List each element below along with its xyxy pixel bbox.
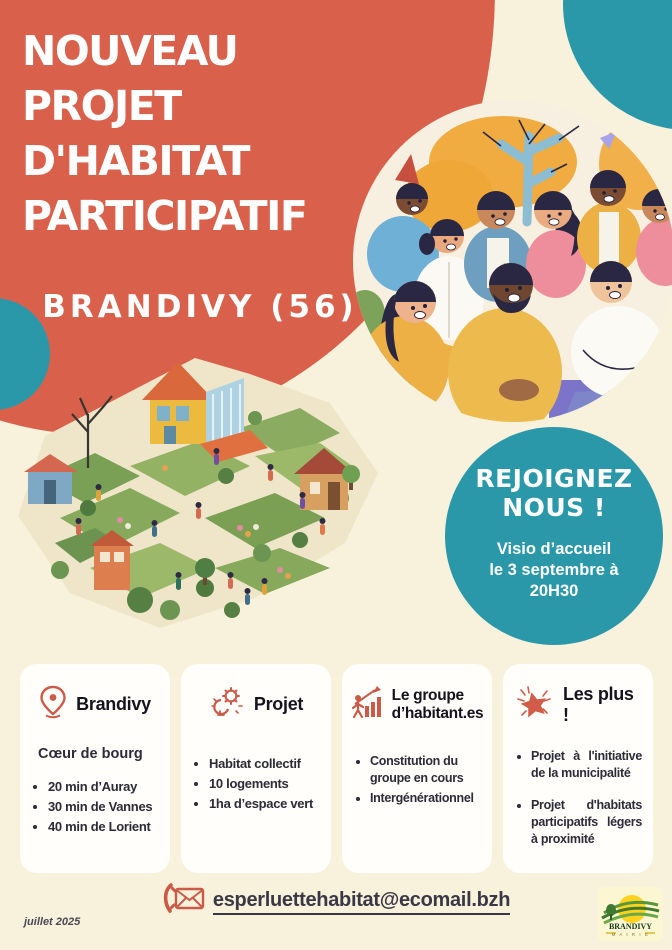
title-line-2: PROJET	[22, 79, 306, 134]
card-brandivy-subtitle: Cœur de bourg	[38, 746, 159, 762]
card-groupe-title: Le groupe d’habitant.es	[392, 687, 484, 723]
card-projet: Projet Habitat collectif 10 logements 1h…	[181, 664, 331, 873]
title-line-4: PARTICIPATIF	[22, 189, 306, 244]
list-item: 30 min de Vannes	[48, 798, 159, 816]
contact-email-link[interactable]: esperluettehabitat@ecomail.bzh	[213, 889, 510, 915]
growth-chart-icon	[351, 684, 383, 725]
logo-title: BRANDIVY	[609, 922, 652, 931]
eco-village-garden-illustration	[0, 348, 400, 640]
location-heading: BRANDIVY (56)	[20, 289, 380, 325]
list-item: 10 logements	[209, 775, 320, 793]
card-projet-list: Habitat collectif 10 logements 1ha d’esp…	[192, 755, 320, 813]
title-line-1: NOUVEAU	[22, 24, 306, 79]
card-brandivy-title: Brandivy	[76, 694, 151, 715]
join-info-line2: le 3 septembre à	[445, 560, 663, 581]
join-heading-line2: NOUS !	[445, 493, 663, 522]
list-item: Projet à l'initiative de la municipalité	[531, 748, 642, 783]
title-line-3: D'HABITAT	[22, 134, 306, 189]
contact-row: esperluettehabitat@ecomail.bzh	[0, 882, 672, 921]
poster: NOUVEAU PROJET D'HABITAT PARTICIPATIF BR…	[0, 0, 672, 950]
card-brandivy: Brandivy Cœur de bourg 20 min d’Auray 30…	[20, 664, 170, 873]
card-les-plus-title: Les plus !	[563, 684, 642, 726]
card-groupe-list: Constitution du groupe en cours Intergén…	[353, 753, 481, 807]
poster-title: NOUVEAU PROJET D'HABITAT PARTICIPATIF	[22, 24, 306, 244]
location-pin-icon	[39, 685, 67, 724]
idea-gear-icon	[209, 684, 245, 725]
card-les-plus: Les plus ! Projet à l'initiative de la m…	[503, 664, 653, 873]
card-projet-title: Projet	[254, 694, 303, 715]
join-info-line1: Visio d’accueil	[445, 539, 663, 560]
list-item: Constitution du groupe en cours	[370, 753, 481, 788]
join-us-circle: REJOIGNEZ NOUS ! Visio d’accueil le 3 se…	[445, 427, 663, 645]
card-brandivy-list: 20 min d’Auray 30 min de Vannes 40 min d…	[31, 778, 159, 836]
join-heading-line1: REJOIGNEZ	[445, 464, 663, 493]
list-item: Intergénérationnel	[370, 790, 481, 807]
list-item: Habitat collectif	[209, 755, 320, 773]
card-les-plus-list: Projet à l'initiative de la municipalité…	[514, 748, 642, 848]
join-info-line3: 20H30	[445, 581, 663, 602]
star-icon	[514, 685, 554, 726]
poster-date: juillet 2025	[24, 916, 80, 928]
list-item: 1ha d’espace vert	[209, 795, 320, 813]
list-item: 20 min d’Auray	[48, 778, 159, 796]
phone-envelope-icon	[162, 882, 206, 921]
community-group-illustration	[353, 100, 672, 422]
brandivy-mairie-logo: BRANDIVY M A I R I E	[598, 887, 663, 941]
info-cards: Brandivy Cœur de bourg 20 min d’Auray 30…	[20, 664, 653, 873]
list-item: 40 min de Lorient	[48, 818, 159, 836]
logo-subtitle: M A I R I E	[612, 932, 650, 937]
card-groupe: Le groupe d’habitant.es Constitution du …	[342, 664, 492, 873]
list-item: Projet d'habitats participatifs légers à…	[531, 797, 642, 849]
